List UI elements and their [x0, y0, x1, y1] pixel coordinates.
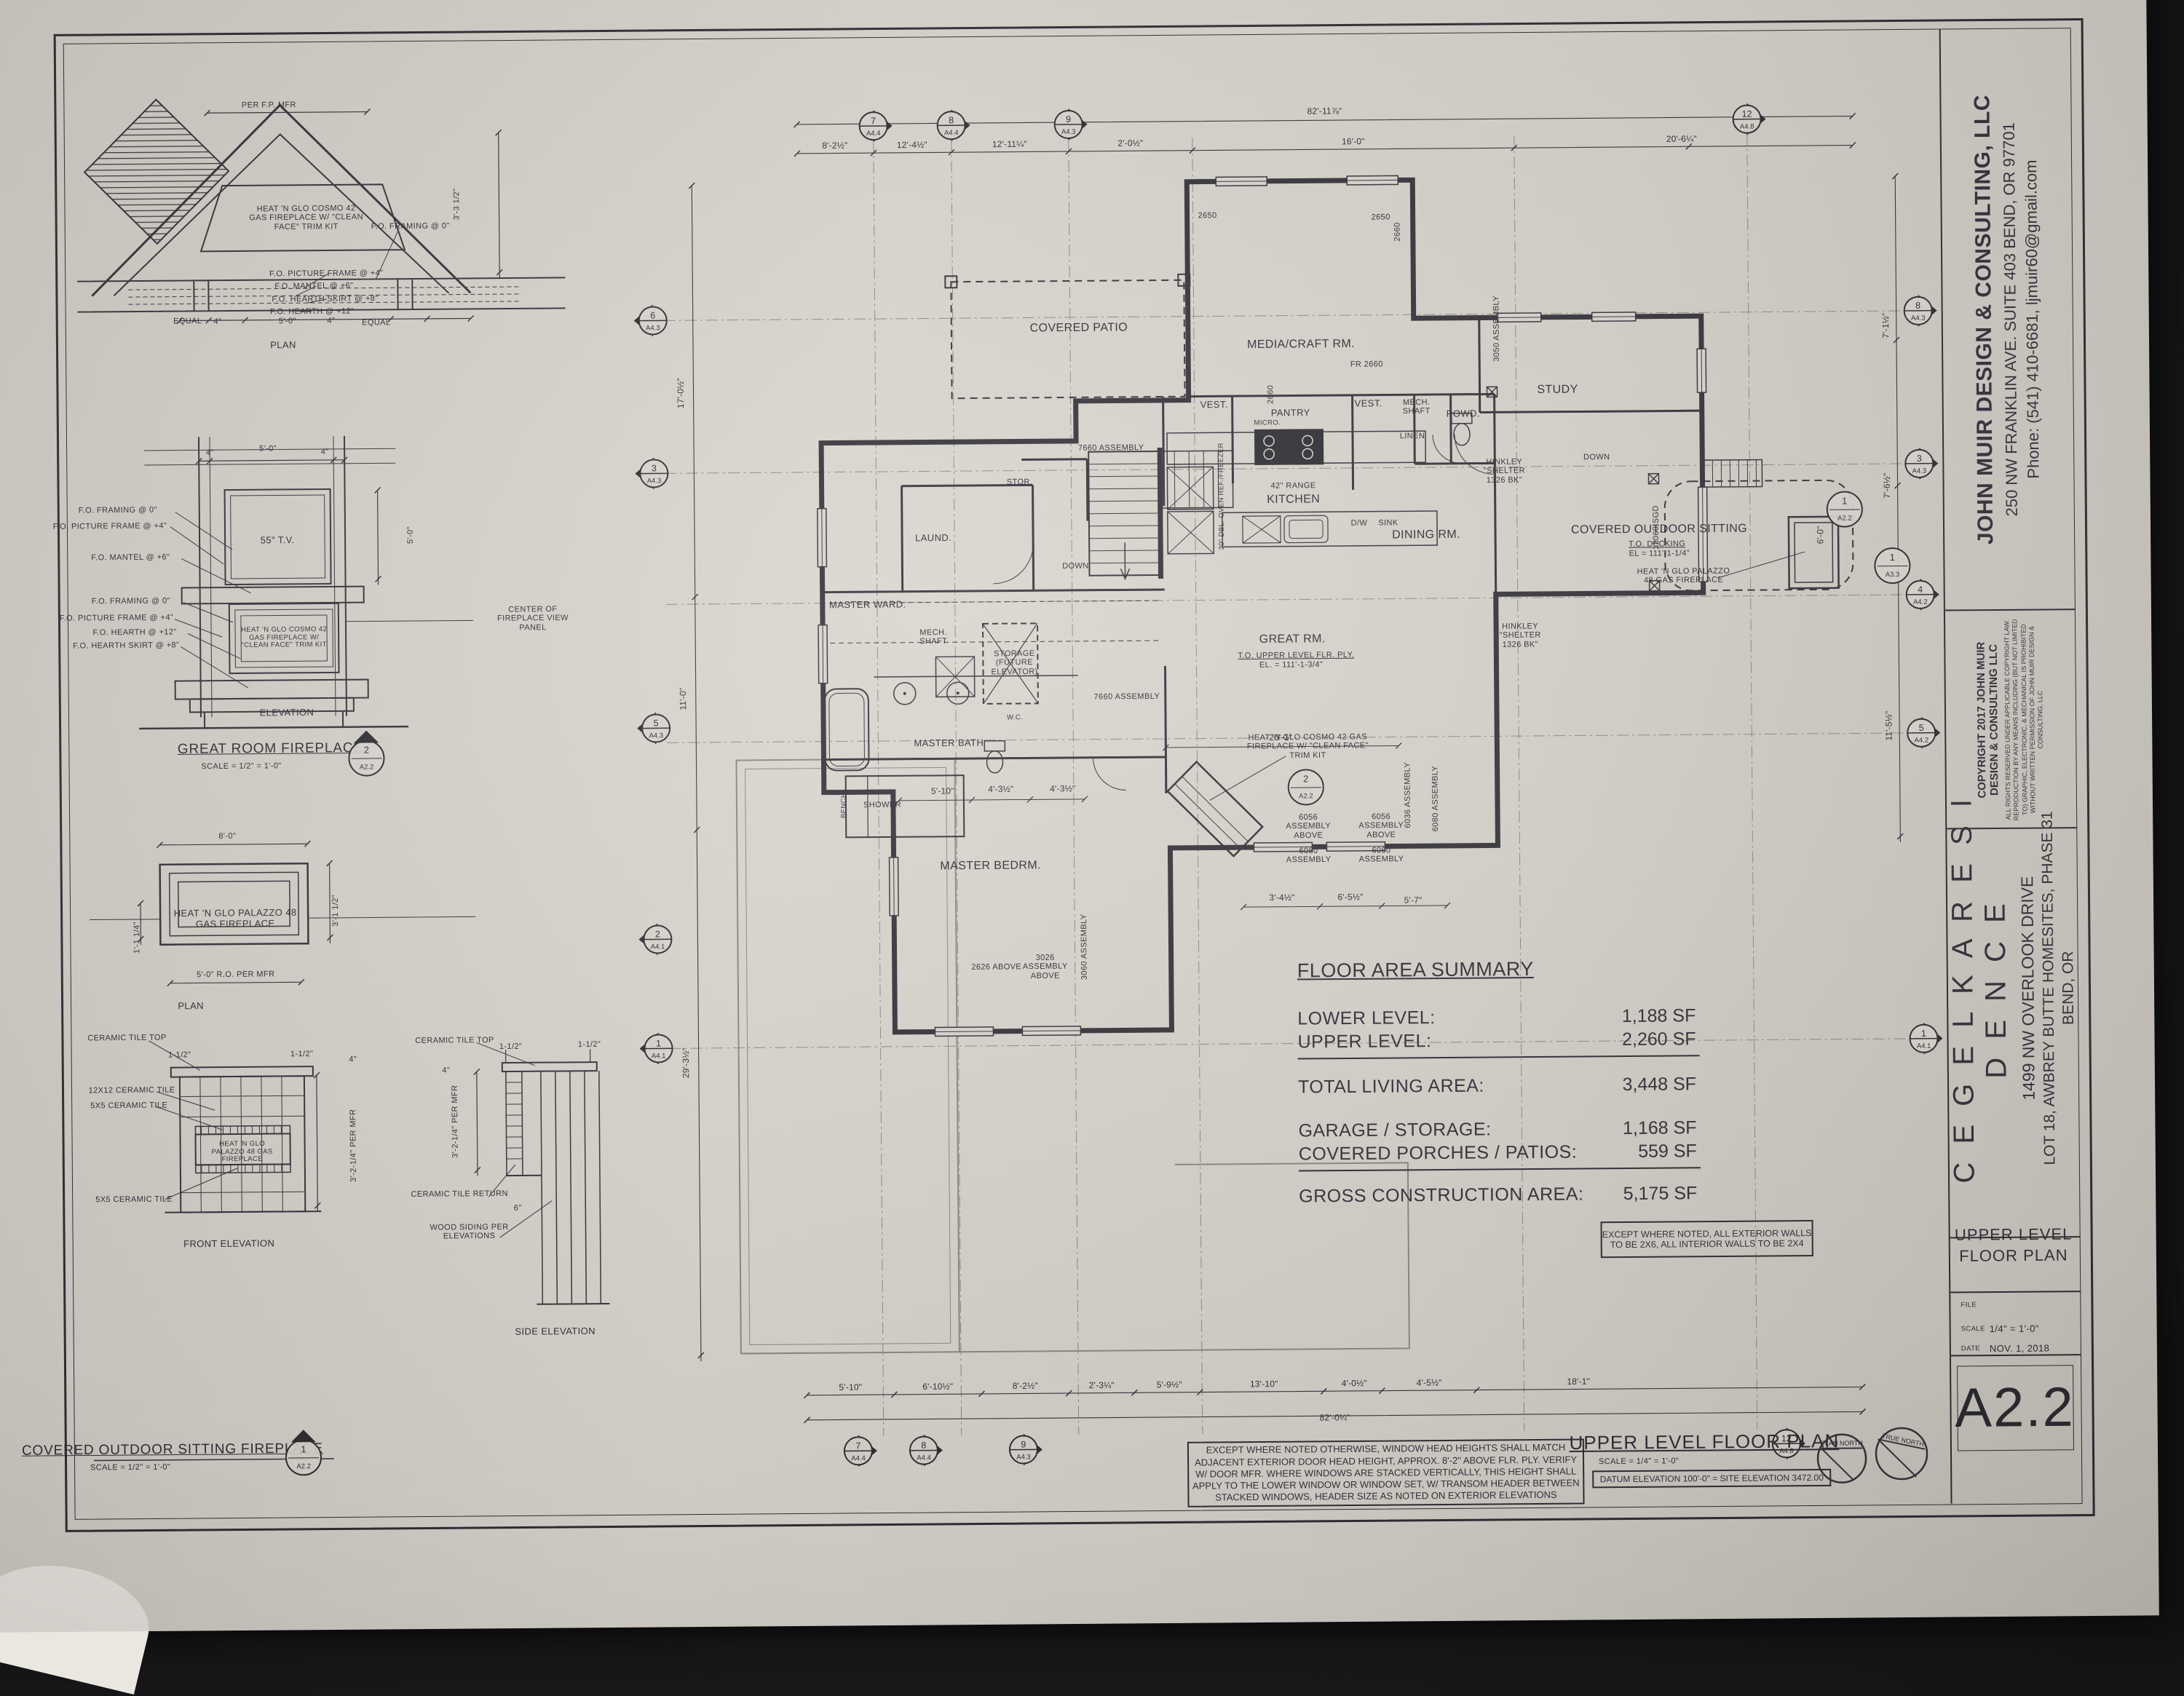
project-name: C E G E L K A R E S I D E N C E: [1945, 790, 2014, 1187]
plan-marker-1-a22: 1 A2.2: [1827, 491, 1863, 527]
grid-marker-sheet: A4.1: [651, 943, 665, 951]
dim-4in: 4": [349, 1055, 357, 1064]
grid-marker-sheet: A4.3: [1061, 128, 1076, 136]
room-study: STUDY: [1537, 384, 1578, 397]
dim-5ft: 5'-0": [406, 526, 415, 544]
summary-label: GROSS CONSTRUCTION AREA:: [1299, 1184, 1583, 1207]
label-down: DOWN: [1583, 453, 1610, 462]
tag-6080-assembly: 6080 ASSEMBLY: [1356, 846, 1406, 864]
grid-marker-sheet: A4.4: [851, 1454, 866, 1462]
callout-mantel: F.O. MANTEL @ +6": [91, 553, 170, 563]
detail-title-great-room-fireplace: GREAT ROOM FIREPLACE: [178, 740, 363, 757]
dim-ro: 5'-0" R.O. PER MFR: [197, 970, 274, 979]
tag-3026-assembly: 3026 ASSEMBLY ABOVE: [1014, 953, 1077, 980]
summary-label: UPPER LEVEL:: [1297, 1031, 1431, 1053]
label-micro: MICRO.: [1254, 419, 1281, 427]
marker-num: 2: [349, 744, 383, 755]
sheet-number: A2.2: [1955, 1376, 2075, 1440]
paper-curl: [0, 1548, 159, 1695]
detail-marker-1-a22: 1 A2.2: [285, 1439, 322, 1475]
callout-picture-frame: F.O. PICTURE FRAME @ +4": [60, 614, 173, 624]
marker-sheet: A2.2: [350, 763, 384, 771]
dim-equal: EQUAL: [173, 317, 202, 326]
summary-label: GARAGE / STORAGE:: [1298, 1119, 1491, 1141]
grid-marker-sheet: A4.3: [1016, 1453, 1031, 1461]
plan-label: PLAN: [178, 1001, 204, 1012]
dim-inner: 3'-4½": [1269, 893, 1294, 903]
room-mech-shaft: MECH. SHAFT: [1396, 398, 1437, 416]
grid-marker-sheet: A4.3: [1912, 467, 1927, 475]
grid-marker-sheet: A4.3: [649, 732, 663, 740]
callout-tile-5: 5X5 CERAMIC TILE: [95, 1195, 173, 1205]
true-north-icon: TRUE NORTH: [1874, 1426, 1930, 1482]
dim-right: 7'-1½": [1881, 313, 1891, 338]
callout-tile-5: 5X5 CERAMIC TILE: [90, 1101, 167, 1111]
dim-top: 2'-0½": [1117, 138, 1143, 148]
blueprint-sheet: 7 A4.4 8 A4.4 9 A4.3 12 A4.8 7 A4.4 8 A4…: [0, 0, 2159, 1633]
center-panel-note: CENTER OF FIREPLACE VIEW PANEL: [489, 605, 577, 633]
dim-4in: 4": [327, 317, 335, 325]
detail-title-covered-outdoor-fireplace: COVERED OUTDOOR SITTING FIREPLACE: [22, 1441, 323, 1459]
scale-label: SCALE: [1961, 1326, 1985, 1334]
summary-value: 5,175 SF: [1595, 1183, 1697, 1205]
grid-marker-sheet: A4.1: [652, 1052, 666, 1060]
grid-marker-num: 4: [1918, 585, 1923, 595]
room-wc: W.C.: [1007, 714, 1023, 722]
fireplace-details-linework: [61, 37, 655, 1541]
callout-tile-top: CERAMIC TILE TOP: [87, 1034, 167, 1043]
great-floor-note: T.O. UPPER LEVEL FLR. PLY.: [1238, 651, 1354, 661]
dim-8ft: 8'-0": [218, 832, 236, 841]
grid-marker-num: 5: [654, 718, 659, 728]
tag-fr2660: FR 2660: [1350, 360, 1383, 369]
plan-marker-1-a33: 1 A3.3: [1874, 547, 1910, 584]
dim-bottom: 4'-5½": [1417, 1378, 1442, 1388]
grid-marker-num: 3: [652, 463, 657, 473]
room-storage: STOR.: [1007, 478, 1033, 487]
grid-marker-sheet: A4.8: [1740, 123, 1754, 131]
project-address1: 1499 NW OVERLOOK DRIVE: [2017, 790, 2039, 1186]
marker-sheet: A2.2: [1289, 792, 1323, 800]
firm-name: JOHN MUIR DESIGN & CONSULTING, LLC: [1970, 39, 1999, 600]
dim-112: 1-1/2": [168, 1050, 191, 1060]
callout-tile-top: CERAMIC TILE TOP: [415, 1036, 494, 1045]
dim-112: 1-1/2": [578, 1040, 601, 1050]
detail-marker-2-a22: 2 A2.2: [348, 740, 384, 776]
grid-marker-num: 12: [1742, 109, 1752, 119]
room-media-craft: MEDIA/CRAFT RM.: [1247, 338, 1355, 352]
grid-marker-num: 1: [656, 1038, 661, 1048]
summary-value: 3,448 SF: [1594, 1074, 1696, 1095]
tag-6036-assembly: 6036 ASSEMBLY: [1403, 762, 1412, 828]
dim-4in: 4": [442, 1066, 450, 1075]
plan-marker-2-a22: 2 A2.2: [1288, 769, 1324, 805]
detail-scale: SCALE = 1/2" = 1'-0": [90, 1463, 170, 1473]
callout-framing: F.O. FRAMING @ 0": [371, 222, 450, 231]
side-elevation-label: SIDE ELEVATION: [515, 1326, 596, 1337]
callout-mantel: F.O. MANTEL @ +6": [274, 282, 353, 291]
dim-bottom: 6'-10½": [922, 1382, 953, 1392]
label-down: DOWN: [1062, 562, 1089, 571]
cosmo-spec-note: HEAT 'N GLO COSMO 42 GAS FIREPLACE W/ "C…: [1238, 732, 1377, 760]
grid-marker-num: 7: [855, 1441, 860, 1451]
dim-left: 17'-0½": [676, 378, 687, 408]
dim-inner: 20'-1": [1269, 733, 1292, 743]
callout-wood-siding: WOOD SIDING PER ELEVATIONS: [425, 1223, 513, 1242]
dim-6in: 6": [514, 1204, 522, 1213]
project-block: C E G E L K A R E S I D E N C E 1499 NW …: [1945, 790, 2078, 1187]
tag-7660-assembly: 7660 ASSEMBLY: [1093, 692, 1160, 702]
dim-inner: 6'-5½": [1337, 892, 1363, 903]
room-master-bedroom: MASTER BEDRM.: [940, 859, 1041, 873]
grid-marker-num: 9: [1021, 1439, 1026, 1449]
sheet-title: UPPER LEVEL FLOOR PLAN: [1955, 1224, 2073, 1267]
dim-bottom: 4'-0½": [1342, 1379, 1367, 1389]
datum-note-box: DATUM ELEVATION 100'-0" = SITE ELEVATION…: [1592, 1469, 1831, 1489]
marker-sheet: A2.2: [287, 1462, 320, 1470]
grid-marker-num: 7: [871, 116, 876, 126]
grid-marker-num: 6: [650, 310, 655, 320]
room-master-bath: MASTER BATH: [914, 738, 984, 749]
summary-label: LOWER LEVEL:: [1297, 1007, 1436, 1029]
summary-label: COVERED PORCHES / PATIOS:: [1299, 1142, 1578, 1165]
dim-right: 7'-6½": [1883, 473, 1893, 499]
grid-marker-num: 9: [1066, 114, 1071, 124]
dim-bottom-overall: 82'-0¼": [1320, 1413, 1350, 1423]
dim-112: 1-1/2": [290, 1050, 313, 1059]
grid-marker-num: 8: [1915, 301, 1920, 311]
palazzo-spec-note: HEAT 'N GLO PALAZZO 48 GAS FIREPLACE: [202, 1141, 282, 1165]
dim-top: 8'-2½": [822, 141, 847, 151]
room-linen: LINEN: [1400, 432, 1425, 441]
label-dw: D/W: [1351, 519, 1368, 528]
callout-framing: F.O. FRAMING @ 0": [92, 597, 170, 606]
callout-tile-return: CERAMIC TILE RETURN: [411, 1189, 507, 1199]
summary-value: 559 SF: [1595, 1141, 1697, 1162]
grid-marker-sheet: A4.4: [866, 130, 881, 138]
callout-hearth: F.O. HEARTH @ +12": [270, 307, 354, 317]
fireplace-spec-note: HEAT 'N GLO COSMO 42 GAS FIREPLACE W/ "C…: [248, 204, 364, 231]
dim-inner: 5'-7": [1404, 895, 1423, 906]
tag-3050-assembly: 3050 ASSEMBLY: [1492, 296, 1501, 362]
window-note-text: EXCEPT WHERE NOTED OTHERWISE, WINDOW HEA…: [1192, 1442, 1580, 1504]
dim-112: 1-1/2": [499, 1042, 522, 1052]
room-laundry: LAUND.: [915, 533, 951, 544]
grid-marker-sheet: A4.3: [1911, 314, 1926, 322]
callout-hearth: F.O. HEARTH @ +12": [92, 627, 176, 637]
marker-num: 1: [1875, 552, 1909, 563]
dim-top-overall: 82'-11⅞": [1307, 106, 1342, 116]
dim-per-mfr: 3'-2-1/4" PER MFR: [349, 1109, 358, 1182]
hinkley-fixture-note: HINKLEY "SHELTER 1326 BK": [1489, 622, 1551, 649]
callout-picture-frame: F.O. PICTURE FRAME @ +4": [53, 522, 167, 532]
dim-bottom: 13'-10": [1250, 1379, 1278, 1390]
dim-4in: 4": [213, 317, 221, 326]
dim-inner: 4'-3½": [1050, 784, 1075, 794]
marker-sheet: A2.2: [1828, 514, 1861, 522]
callout-tile-12: 12X12 CERAMIC TILE: [89, 1086, 175, 1095]
dim-left: 29'-3½": [681, 1047, 692, 1078]
plan-north-label: PLAN NORTH: [1821, 1439, 1863, 1446]
grid-marker-sheet: A4.2: [1915, 737, 1929, 745]
dim-bottom: 5'-9½": [1157, 1380, 1182, 1390]
detail-scale: SCALE = 1/2" = 1'-0": [201, 761, 281, 771]
summary-label: TOTAL LIVING AREA:: [1298, 1076, 1484, 1098]
grid-marker-num: 1: [1921, 1029, 1926, 1039]
date-value: NOV. 1, 2018: [1990, 1343, 2049, 1354]
room-powder: POWD.: [1447, 408, 1480, 419]
dim-bottom: 18'-1": [1567, 1377, 1590, 1387]
marker-sheet: A3.3: [1875, 571, 1909, 579]
window-note-box: EXCEPT WHERE NOTED OTHERWISE, WINDOW HEA…: [1187, 1438, 1585, 1507]
grid-marker-num: 8: [949, 115, 954, 125]
wall-note-text: EXCEPT WHERE NOTED, ALL EXTERIOR WALLS T…: [1602, 1228, 1812, 1250]
summary-title: FLOOR AREA SUMMARY: [1297, 958, 1534, 983]
summary-value: 1,188 SF: [1594, 1005, 1696, 1027]
dim-top: 12'-11¼": [992, 140, 1027, 150]
label-ref-freezer: REF./FREEZER: [1218, 443, 1226, 495]
dim-sitting: 6'-0": [1816, 526, 1826, 544]
grid-marker-sheet: A4.2: [1913, 598, 1928, 606]
grid-marker-sheet: A4.4: [944, 129, 959, 137]
tag-12060-sgd: 12060 SGD: [1652, 505, 1661, 550]
callout-hearth-skirt: F.O. HEARTH SKIRT @ +8": [272, 294, 378, 304]
callout-hearth-skirt: F.O. HEARTH SKIRT @ +8": [73, 641, 179, 650]
label-bench: BENCH: [841, 793, 849, 818]
room-storage-future-elevator: STORAGE (FUTURE ELEVATOR): [985, 649, 1043, 677]
dim-5ft: 5'-0": [259, 444, 277, 453]
dim-inner: 4'-3½": [988, 785, 1013, 795]
file-label: FILE: [1961, 1301, 1977, 1309]
dim-per-mfr: 3'-2-1/4" PER MFR: [451, 1085, 460, 1157]
elevation-label: ELEVATION: [260, 708, 314, 718]
tag-6056-assembly: 6056 ASSEMBLY ABOVE: [1356, 812, 1406, 839]
dim-top: 20'-6¼": [1666, 134, 1697, 144]
dim-5ft: 5'-0": [279, 317, 296, 325]
summary-value: 1,168 SF: [1594, 1117, 1696, 1139]
grid-marker-num: 2: [655, 929, 660, 939]
grid-marker-sheet: A4.4: [917, 1454, 931, 1462]
room-kitchen: KITCHEN: [1267, 493, 1320, 506]
dim-bottom: 2'-3¼": [1089, 1381, 1115, 1391]
plan-north-icon: PLAN NORTH: [1816, 1432, 1869, 1485]
grid-marker-sheet: A4.3: [647, 477, 662, 485]
dim-top: 16'-0": [1342, 137, 1365, 147]
room-dining: DINING RM.: [1392, 528, 1460, 542]
label-sink: SINK: [1378, 518, 1398, 528]
tag-2660: 2660: [1266, 385, 1275, 404]
dim-top: 12'-4½": [897, 140, 927, 151]
label-range: 42" RANGE: [1271, 481, 1316, 491]
label-dbl-oven: 30" DBL. OVEN: [1218, 497, 1226, 550]
tag-6056-assembly: 6056 ASSEMBLY ABOVE: [1283, 813, 1334, 840]
dim-bottom: 5'-10": [839, 1383, 862, 1393]
dim-312: 3'-1 1/2": [331, 895, 341, 927]
dim-bottom: 8'-2½": [1013, 1382, 1038, 1392]
palazzo-spec-note: HEAT 'N GLO PALAZZO 48 GAS FIREPLACE: [166, 908, 304, 930]
great-floor-elevation: EL. = 111'-1-3/4": [1259, 660, 1323, 670]
datum-note-text: DATUM ELEVATION 100'-0" = SITE ELEVATION…: [1600, 1473, 1824, 1484]
grid-marker-num: 3: [1917, 453, 1922, 464]
dim-4in: 4": [206, 448, 214, 457]
fireplace-spec-note: HEAT 'N GLO COSMO 42 GAS FIREPLACE W/ "C…: [240, 626, 328, 650]
date-label: DATE: [1961, 1345, 1980, 1353]
sheet-title-line1: UPPER LEVEL: [1955, 1224, 2073, 1246]
room-master-ward: MASTER WARD.: [829, 599, 906, 610]
callout-framing: F.O. FRAMING @ 0": [79, 506, 157, 515]
tag-7660-assembly: 7660 ASSEMBLY: [1078, 443, 1144, 453]
room-vest: VEST.: [1200, 400, 1228, 411]
firm-info: JOHN MUIR DESIGN & CONSULTING, LLC 250 N…: [1970, 39, 2044, 601]
marker-num: 1: [287, 1443, 320, 1454]
marker-num: 2: [1289, 773, 1323, 784]
tag-3060-assembly: 3060 ASSEMBLY: [1080, 914, 1089, 980]
project-address2: LOT 18, AWBREY BUTTE HOMESITES, PHASE 31: [2038, 790, 2059, 1186]
tag-6080-assembly: 6080 ASSEMBLY: [1431, 766, 1440, 832]
front-elevation-label: FRONT ELEVATION: [183, 1238, 274, 1250]
dim-332: 3'-3 1/2": [452, 189, 462, 221]
tag-2650: 2650: [1198, 211, 1217, 221]
dim-114: 1'-1 1/4": [132, 922, 142, 954]
room-covered-patio: COVERED PATIO: [1030, 321, 1128, 335]
hinkley-fixture-note: HINKLEY "SHELTER 1326 BK": [1473, 457, 1535, 485]
dim-left: 11'-0": [678, 688, 689, 710]
room-shower: SHOWER: [863, 801, 901, 810]
room-vest: VEST.: [1355, 398, 1382, 409]
room-pantry: PANTRY: [1271, 408, 1310, 419]
wall-note-box: EXCEPT WHERE NOTED, ALL EXTERIOR WALLS T…: [1600, 1220, 1813, 1258]
dim-equal: EQUAL: [362, 318, 390, 328]
room-great: GREAT RM.: [1259, 633, 1326, 646]
plan-title: UPPER LEVEL FLOOR PLAN: [1569, 1430, 1839, 1454]
grid-marker-num: 8: [921, 1441, 926, 1451]
deck-elevation-value: EL = 111'-1-1/4": [1629, 549, 1690, 558]
tag-2660: 2660: [1393, 222, 1403, 241]
plan-title-scale: SCALE = 1/4" = 1'-0": [1599, 1457, 1679, 1466]
marker-num: 1: [1828, 495, 1861, 506]
grid-marker-sheet: A4.3: [646, 324, 660, 332]
tag-6080-assembly: 6080 ASSEMBLY: [1283, 847, 1334, 865]
project-address3: BEND, OR: [2058, 790, 2078, 1186]
summary-value: 2,260 SF: [1594, 1029, 1696, 1050]
room-mech-shaft: MECH. SHAFT: [913, 628, 954, 646]
plan-label: PLAN: [270, 340, 296, 351]
scale-value: 1/4" = 1'-0": [1990, 1324, 2039, 1335]
palazzo-spec-note: HEAT 'N GLO PALAZZO 48 GAS FIREPLACE: [1632, 567, 1734, 586]
callout-picture-frame: F.O. PICTURE FRAME @ +4": [269, 269, 383, 279]
dim-right: 11'-5½": [1884, 711, 1894, 741]
tag-2650: 2650: [1372, 213, 1390, 222]
grid-marker-num: 5: [1919, 723, 1924, 733]
firm-address: 250 NW FRANKLIN AVE. SUITE 403 BEND, OR …: [1999, 39, 2022, 600]
detail-dim: PER F.P. MFR: [242, 100, 296, 110]
dim-4in: 4": [321, 448, 329, 456]
grid-marker-sheet: A4.1: [1917, 1042, 1931, 1050]
tv-label: 55" T.V.: [261, 535, 295, 546]
dim-inner: 5'-10": [931, 787, 954, 797]
sheet-title-line2: FLOOR PLAN: [1955, 1245, 2073, 1267]
